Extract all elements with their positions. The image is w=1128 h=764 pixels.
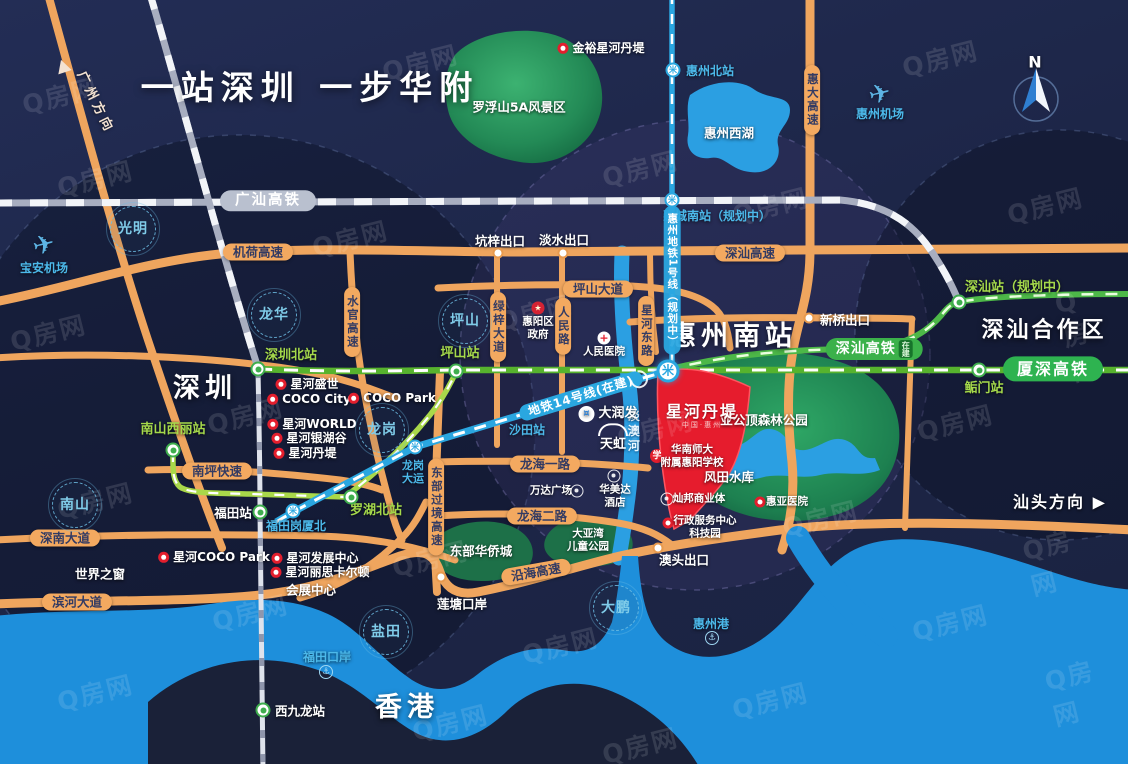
rail-station-icon [952, 295, 967, 310]
port-futian-label: 福田口岸 [303, 650, 351, 664]
badge-pingshan: 坪山 [442, 298, 488, 344]
pill-yanhai-expwy: 沿海高速 [500, 558, 572, 587]
sta-xijiulong-text: 西九龙站 [275, 704, 325, 719]
poi-xinghe-yinhugu-label: 星河银湖谷 [286, 431, 346, 445]
renmin-hospital-icon: + [598, 332, 611, 345]
futian-icon [253, 505, 268, 520]
huizhoubei-metro-icon: 米 [666, 63, 681, 78]
poi-xinghe-ritz-label: 星河丽思卡尔顿 [285, 565, 369, 579]
area-oct-east: 东部华侨城 [450, 544, 513, 559]
shenshan-station-icon [952, 295, 967, 310]
port-huizhou-label: 惠州港 [693, 617, 729, 631]
sta-longgang-dayun: 龙岗大运 [402, 459, 424, 485]
pill-nanping-expwy-text: 南坪快速 [192, 464, 242, 479]
red-pin-icon [348, 392, 359, 403]
poi-convention-center-text: 会展中心 [286, 583, 336, 598]
port-liantang-label: 莲塘口岸 [437, 597, 487, 612]
area-luofushan: 罗浮山5A风景区 [472, 100, 565, 115]
sta-shatian: 沙田站 [509, 423, 545, 437]
airplane-icon: ✈ [30, 228, 59, 264]
sta-pingshan: 坪山站 [440, 346, 479, 362]
poi-renmin-hospital: 人民医院 [583, 346, 625, 359]
pill-shenshan-expwy-text: 深汕高速 [725, 246, 775, 261]
dir-guangzhou-arrow [56, 60, 70, 73]
poi-jinyu-xinghe-danti-label: 金裕星河丹堤 [572, 41, 644, 55]
pill-huizhou-metro-line1-text: 惠州地铁1号线（规划中） [666, 213, 679, 348]
city-shenzhen: 深圳 [173, 373, 237, 405]
poi-xinghe-world: 星河WORLD [267, 417, 356, 431]
poi-renmin-hospital-text: 人民医院 [583, 346, 625, 359]
poi-window-of-world: 世界之窗 [75, 567, 125, 582]
exit-aotou-label: 澳头出口 [659, 553, 709, 568]
poi-convention-center: 会展中心 [286, 583, 336, 598]
poi-admin-center: 行政服务中心科技园 [674, 514, 737, 539]
nanshan-xili-icon [166, 443, 181, 458]
map-canvas: Q房网Q房网Q房网Q房网Q房网Q房网Q房网Q房网Q房网Q房网Q房网Q房网Q房网Q… [0, 0, 1128, 764]
badge-dapeng: 大鹏 [593, 585, 639, 631]
red-pin-icon [267, 418, 278, 429]
port-liantang-label-text: 莲塘口岸 [437, 597, 487, 612]
exit-dot-icon [436, 572, 447, 583]
tianhong-arc-icon [598, 423, 628, 436]
exit-xinqiao-label-text: 新桥出口 [820, 313, 870, 328]
logo-tianhong-label: 天虹 [600, 437, 626, 453]
station-huizhounan-title: 惠州南站 [669, 321, 797, 353]
baoan-plane-icon: ✈ [33, 230, 55, 261]
red-pin-icon [275, 378, 286, 389]
poi-admin-center-text: 行政服务中心 [674, 514, 737, 527]
metro-station-icon: 米 [286, 504, 301, 519]
exit-xinqiao-label: 新桥出口 [820, 313, 870, 328]
pill-guangshan-hsr: 广汕高铁 [220, 190, 316, 211]
line1-rail-crossing-icon: 米 [665, 193, 680, 208]
project-logo: 星河丹堤中国·惠州 [666, 402, 738, 430]
city-hongkong: 香港 [375, 692, 439, 724]
exit-kengzi-label: 坑梓出口 [475, 234, 525, 249]
ramada-hotel-icon [608, 470, 621, 483]
badge-guangming: 光明 [110, 206, 156, 252]
exit-dot-icon [558, 248, 569, 259]
poi-xinghe-danti-label: 星河丹堤 [288, 446, 336, 460]
xijiulong-icon [256, 703, 271, 718]
pill-lvzi-ave: 绿梓大道 [490, 292, 506, 362]
pill-shennan-ave: 深南大道 [30, 530, 100, 547]
pill-guangshan-hsr-text: 广汕高铁 [235, 192, 301, 209]
pill-shuiguan-expwy-text: 水官高速 [345, 295, 359, 349]
dir-guangzhou-text: 广州方向 [73, 69, 117, 137]
sta-xijiulong: 西九龙站 [275, 704, 325, 719]
poi-ramada-hotel-text: 华美达 [599, 483, 631, 496]
huiyang-gov-icon: ★ [532, 302, 545, 315]
futian-gangxiabei-icon: 米 [286, 504, 301, 519]
red-pin-icon [273, 447, 284, 458]
longgang-dayun-icon: 米 [408, 440, 423, 455]
poi-school: 华南师大附属惠阳学校 [661, 443, 724, 468]
pill-shenshan-hsr: 深汕高铁在建 [826, 338, 923, 360]
pill-xinghe-east-rd-text: 星河东路 [639, 304, 653, 358]
shop-ring-icon [608, 470, 621, 483]
sta-futian: 福田站 [214, 506, 252, 521]
port-liantang-dot [436, 572, 447, 583]
compass-n-label: N [1028, 52, 1043, 71]
pill-east-transit-expwy-text: 东部过境高速 [429, 467, 443, 548]
badge-guangming-text: 光明 [118, 221, 148, 238]
pill-jihe-expwy-text: 机荷高速 [233, 245, 283, 260]
poi-huizhou-airport: 惠州机场 [856, 107, 904, 121]
project-logo-subtitle: 中国·惠州 [666, 421, 738, 429]
rail-station-icon [972, 363, 987, 378]
area-oct-east-text: 东部华侨城 [450, 544, 513, 559]
lake-west-lake-label: 惠州西湖 [704, 126, 754, 141]
logo-rtmart-label: 大润发 [598, 406, 637, 422]
poi-ramada-hotel-text-line2: 酒店 [605, 496, 626, 509]
sta-luohubei: 罗湖北站 [350, 503, 402, 519]
rail-station-icon [449, 364, 464, 379]
area-fengtian-reservoir: 风田水库 [704, 470, 754, 485]
pill-xinghe-east-rd: 星河东路 [638, 296, 654, 366]
poi-xinghe-cocopark: 星河COCO Park [158, 550, 270, 564]
sta-luohubei-text: 罗湖北站 [350, 503, 402, 519]
exit-dot-icon [653, 543, 664, 554]
exit-xinqiao-dot [804, 313, 815, 324]
area-dayawan-park-text-line2: 儿童公园 [567, 540, 609, 553]
sta-houmen-text: 鲘门站 [964, 381, 1003, 397]
sta-shenzhenbei: 深圳北站 [265, 348, 317, 364]
sta-nanshan-xili: 南山西丽站 [140, 422, 205, 438]
government-icon: ★ [532, 302, 545, 315]
poi-coco-park-label: COCO Park [363, 391, 436, 405]
pingshan-icon [449, 364, 464, 379]
pill-xiashen-hsr: 厦深高铁 [1003, 356, 1103, 381]
exit-aotou-label-text: 澳头出口 [659, 553, 709, 568]
metro-station-icon: 米 [666, 63, 681, 78]
shenzhenbei-icon [251, 362, 266, 377]
poi-huiyang-gov: 惠阳区政府 [522, 315, 554, 340]
exit-danshui-dot [558, 248, 569, 259]
area-luofushan-text: 罗浮山5A风景区 [472, 100, 565, 115]
huiya-hospital-icon [755, 497, 766, 508]
logo-tianhong: 天虹 [598, 423, 628, 453]
sta-shatian-text: 沙田站 [509, 423, 545, 437]
pill-yanhai-expwy-text: 沿海高速 [510, 560, 562, 583]
main-title: 一站深圳 一步华附 [141, 68, 480, 108]
exit-dot-icon [804, 313, 815, 324]
map-labels: 一站深圳 一步华附深圳香港惠州南站深汕合作区世界之窗会展中心汕头方向 ▶N广州方… [0, 0, 1128, 764]
poi-xinghe-yinhugu: 星河银湖谷 [271, 431, 346, 445]
pill-binhe-ave: 滨河大道 [42, 594, 112, 611]
poi-canbang: 灿邦商业体 [673, 493, 726, 506]
red-pin-icon [270, 566, 281, 577]
huizhounan-interchange-icon: 米 [657, 360, 680, 383]
pill-nanping-expwy: 南坪快速 [182, 463, 252, 480]
pill-longhai-1st-rd-text: 龙海一路 [520, 457, 570, 472]
sta-longgang-dayun-text-line2: 大运 [402, 472, 424, 485]
dir-shantou: 汕头方向 ▶ [1013, 492, 1107, 511]
exit-dot-icon [493, 248, 504, 259]
pill-huida-expwy: 惠大高速 [804, 65, 820, 135]
rail-station-icon [251, 362, 266, 377]
poi-coco-city-label: COCO City [282, 392, 351, 406]
pill-xiashen-hsr-text: 厦深高铁 [1017, 359, 1089, 378]
shop-ring-icon [571, 485, 584, 498]
direction-arrow-icon [54, 58, 71, 75]
sta-huizhoubei: 惠州北站 [686, 64, 734, 78]
area-dayawan-park: 大亚湾儿童公园 [567, 527, 609, 552]
badge-longhua-text: 龙华 [259, 307, 289, 324]
badge-pingshan-text: 坪山 [450, 313, 480, 330]
exit-aotou-dot [653, 543, 664, 554]
pill-longhai-2nd-rd: 龙海二路 [507, 508, 577, 525]
hospital-cross-icon: + [598, 332, 611, 345]
poi-huiya-hospital-text: 惠亚医院 [766, 496, 808, 509]
poi-xinghe-shengshi: 星河盛世 [275, 377, 338, 391]
poi-xinghe-cocopark-label: 星河COCO Park [173, 550, 270, 564]
sta-longgang-dayun-text: 龙岗 [402, 459, 424, 472]
badge-longhua: 龙华 [251, 292, 297, 338]
poi-xinghe-ritz: 星河丽思卡尔顿 [270, 565, 369, 579]
poi-window-of-world-text: 世界之窗 [75, 567, 125, 582]
rail-station-icon [253, 505, 268, 520]
sta-houmen: 鲘门站 [964, 381, 1003, 397]
badge-nanshan: 南山 [52, 482, 98, 528]
area-fengtian-reservoir-text: 风田水库 [704, 470, 754, 485]
city-hongkong-text: 香港 [375, 692, 439, 724]
poi-wanda-plaza-text: 万达广场 [530, 485, 572, 498]
badge-nanshan-text: 南山 [60, 497, 90, 514]
poi-coco-city: COCO City [267, 392, 351, 406]
poi-admin-center-text-line2: 科技园 [689, 527, 721, 540]
red-pin-icon [158, 551, 169, 562]
red-pin-icon [271, 432, 282, 443]
exit-kengzi-dot [493, 248, 504, 259]
sta-huizhoubei-text: 惠州北站 [686, 64, 734, 78]
rail-station-icon [166, 443, 181, 458]
pill-renmin-rd-text: 人民路 [556, 306, 570, 347]
pill-shennan-ave-text: 深南大道 [40, 531, 90, 546]
red-pin-icon [271, 552, 282, 563]
pill-renmin-rd: 人民路 [555, 298, 571, 355]
rt-mart-logo-icon: ¤ [578, 406, 594, 422]
port-futian-label-text: 福田口岸 [303, 650, 351, 664]
poi-coco-park: COCO Park [348, 391, 436, 405]
poi-huiyang-gov-text: 惠阳区 [522, 315, 554, 328]
sta-shenshan-planned: 深汕站（规划中） [965, 280, 1069, 296]
metro-station-icon: 米 [665, 193, 680, 208]
sta-futian-gangxiabei: 福田岗厦北 [266, 519, 326, 533]
poi-xinghe-danti: 星河丹堤 [273, 446, 336, 460]
city-shenzhen-text: 深圳 [173, 373, 237, 405]
admin-center-icon [663, 518, 674, 529]
port-icon: ⚓ [705, 631, 719, 645]
dir-shantou-text: 汕头方向 ▶ [1013, 492, 1107, 511]
pill-lvzi-ave-text: 绿梓大道 [491, 300, 505, 354]
badge-longgang: 龙岗 [359, 407, 405, 453]
pill-pingshan-ave-text: 坪山大道 [573, 282, 623, 297]
badge-dapeng-text: 大鹏 [601, 600, 631, 617]
canbang-icon [661, 493, 674, 506]
shop-ring-icon [661, 493, 674, 506]
poi-xinghe-dev-center: 星河发展中心 [271, 551, 358, 565]
pill-huizhou-metro-line1: 惠州地铁1号线（规划中） [664, 206, 681, 355]
pill-huida-expwy-text: 惠大高速 [805, 73, 819, 127]
poi-baoan-airport: 宝安机场 [20, 261, 68, 275]
wanda-plaza-icon [571, 485, 584, 498]
sta-futian-gangxiabei-text: 福田岗厦北 [266, 519, 326, 533]
sta-shenzhenbei-text: 深圳北站 [265, 348, 317, 364]
pill-jihe-expwy: 机荷高速 [223, 244, 293, 261]
area-shenshan-coop: 深汕合作区 [981, 318, 1106, 344]
metro-station-icon: 米 [408, 440, 423, 455]
sta-futian-text: 福田站 [214, 506, 252, 521]
poi-xinghe-world-label: 星河WORLD [282, 417, 356, 431]
exit-danshui-label: 淡水出口 [539, 233, 589, 248]
poi-huizhou-airport-text: 惠州机场 [856, 107, 904, 121]
poi-ramada-hotel: 华美达酒店 [599, 483, 631, 508]
rail-station-icon [344, 490, 359, 505]
red-pin-icon [557, 42, 568, 53]
pill-shuiguan-expwy: 水官高速 [344, 287, 360, 357]
poi-jinyu-xinghe-danti: 金裕星河丹堤 [557, 41, 644, 55]
red-pin-icon [267, 393, 278, 404]
badge-yantian-text: 盐田 [371, 624, 401, 641]
poi-huiyang-gov-text-line2: 政府 [528, 328, 549, 341]
rail-station-icon [256, 703, 271, 718]
project-logo-name: 星河丹堤 [666, 402, 738, 421]
sta-pingshan-text: 坪山站 [440, 346, 479, 362]
poi-xinghe-dev-center-label: 星河发展中心 [286, 551, 358, 565]
pill-shenshan-hsr-tag: 在建 [899, 340, 913, 358]
port-huizhou-label-text: 惠州港 [693, 617, 729, 631]
compass-n-label-text: N [1028, 52, 1043, 71]
sta-shenshan-planned-text: 深汕站（规划中） [965, 280, 1069, 296]
huizhou-port-anchor-icon: ⚓ [705, 631, 719, 645]
dir-guangzhou: 广州方向 [73, 69, 117, 137]
logo-rtmart: ¤大润发 [578, 406, 637, 422]
poi-xinghe-shengshi-label: 星河盛世 [290, 377, 338, 391]
futian-port-icon: ⚓ [319, 665, 333, 679]
red-pin-icon [663, 518, 674, 529]
houmen-icon [972, 363, 987, 378]
poi-school-text: 华南师大 [671, 443, 713, 456]
pill-longhai-1st-rd: 龙海一路 [510, 456, 580, 473]
area-shenshan-coop-text: 深汕合作区 [981, 318, 1106, 344]
main-title-text: 一站深圳 一步华附 [141, 68, 480, 108]
badge-longgang-text: 龙岗 [367, 422, 397, 439]
pill-shenshan-hsr-text: 深汕高铁 [836, 341, 896, 358]
port-icon: ⚓ [319, 665, 333, 679]
pill-longhai-2nd-rd-text: 龙海二路 [517, 509, 567, 524]
exit-kengzi-label-text: 坑梓出口 [475, 234, 525, 249]
poi-huiya-hospital: 惠亚医院 [766, 496, 808, 509]
station-huizhounan-title-text: 惠州南站 [669, 321, 797, 353]
logo-project: 星河丹堤中国·惠州 [666, 402, 738, 430]
poi-wanda-plaza: 万达广场 [530, 485, 572, 498]
pill-pingshan-ave: 坪山大道 [563, 281, 633, 298]
poi-school-text-line2: 附属惠阳学校 [661, 456, 724, 469]
pill-binhe-ave-text: 滨河大道 [52, 595, 102, 610]
lake-west-lake-label-text: 惠州西湖 [704, 126, 754, 141]
pill-shenshan-expwy: 深汕高速 [715, 245, 785, 262]
badge-yantian: 盐田 [363, 609, 409, 655]
exit-danshui-label-text: 淡水出口 [539, 233, 589, 248]
poi-baoan-airport-text: 宝安机场 [20, 261, 68, 275]
luohubei-icon [344, 490, 359, 505]
poi-canbang-text: 灿邦商业体 [673, 493, 726, 506]
sta-nanshan-xili-text: 南山西丽站 [140, 422, 205, 438]
pill-east-transit-expwy: 东部过境高速 [428, 459, 444, 556]
metro-interchange-icon: 米 [657, 360, 680, 383]
red-pin-icon [755, 497, 766, 508]
area-dayawan-park-text: 大亚湾 [572, 527, 604, 540]
